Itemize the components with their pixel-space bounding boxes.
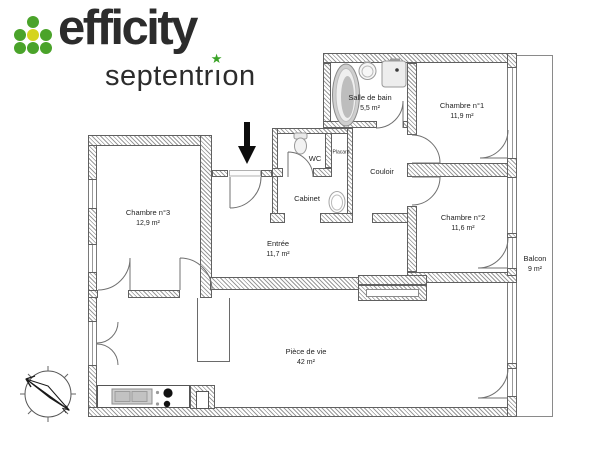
- bedroom3-door-right: [180, 258, 212, 290]
- bedroom3-door-left: [98, 258, 130, 290]
- kitchen-sink-icon: [112, 389, 152, 404]
- compass-rose-icon: N: [20, 366, 76, 422]
- room-name: Chambre n°3: [126, 208, 170, 219]
- entrance-arrow-icon: [238, 122, 256, 164]
- room-name: Balcon: [524, 254, 547, 265]
- room-name: Couloir: [370, 167, 394, 178]
- threshold: [230, 171, 261, 177]
- cooktop-icon: [156, 388, 173, 407]
- room-area: 11,6 m²: [441, 223, 485, 233]
- room-area: 5,5 m²: [348, 103, 391, 113]
- balcony-door-bedroom2: [478, 238, 508, 268]
- floor-plan-page: efficity septentrı★on: [0, 0, 600, 450]
- room-name: Chambre n°1: [440, 101, 484, 112]
- room-label-chambre3: Chambre n°3 12,9 m²: [126, 208, 170, 228]
- compass-north-label: N: [60, 403, 71, 415]
- shower-icon: [382, 59, 406, 88]
- room-name: Entrée: [266, 239, 289, 250]
- room-label-wc: WC: [309, 154, 322, 165]
- room-name: Placard: [333, 150, 350, 157]
- room-name: Chambre n°2: [441, 213, 485, 224]
- room-label-placard: Placard: [333, 150, 350, 157]
- room-area: 11,7 m²: [266, 249, 289, 259]
- sink-icon: [329, 192, 345, 213]
- plan-graphics: N: [0, 0, 600, 450]
- room-label-piece-de-vie: Pièce de vie 42 m²: [286, 347, 327, 367]
- room-label-couloir: Couloir: [370, 167, 394, 178]
- entrance-door: [230, 177, 261, 208]
- room-area: 12,9 m²: [126, 218, 170, 228]
- room-label-chambre2: Chambre n°2 11,6 m²: [441, 213, 485, 233]
- room-label-salle-de-bain: Salle de bain 5,5 m²: [348, 93, 391, 113]
- bedroom2-door: [412, 177, 440, 205]
- room-label-chambre1: Chambre n°1 11,9 m²: [440, 101, 484, 121]
- room-area: 11,9 m²: [440, 111, 484, 121]
- room-label-cabinet: Cabinet: [294, 194, 320, 205]
- room-label-balcon: Balcon 9 m²: [524, 254, 547, 274]
- bedroom1-door: [412, 135, 440, 163]
- french-door: [97, 322, 118, 365]
- room-name: WC: [309, 154, 322, 165]
- washbasin-icon: [359, 62, 376, 80]
- toilet-icon: [294, 133, 307, 154]
- room-label-entree: Entrée 11,7 m²: [266, 239, 289, 259]
- room-name: Cabinet: [294, 194, 320, 205]
- balcony-door-bedroom1: [480, 130, 508, 158]
- room-name: Pièce de vie: [286, 347, 327, 358]
- room-area: 9 m²: [524, 264, 547, 274]
- balcony-door-living: [478, 368, 508, 398]
- room-name: Salle de bain: [348, 93, 391, 104]
- room-area: 42 m²: [286, 357, 327, 367]
